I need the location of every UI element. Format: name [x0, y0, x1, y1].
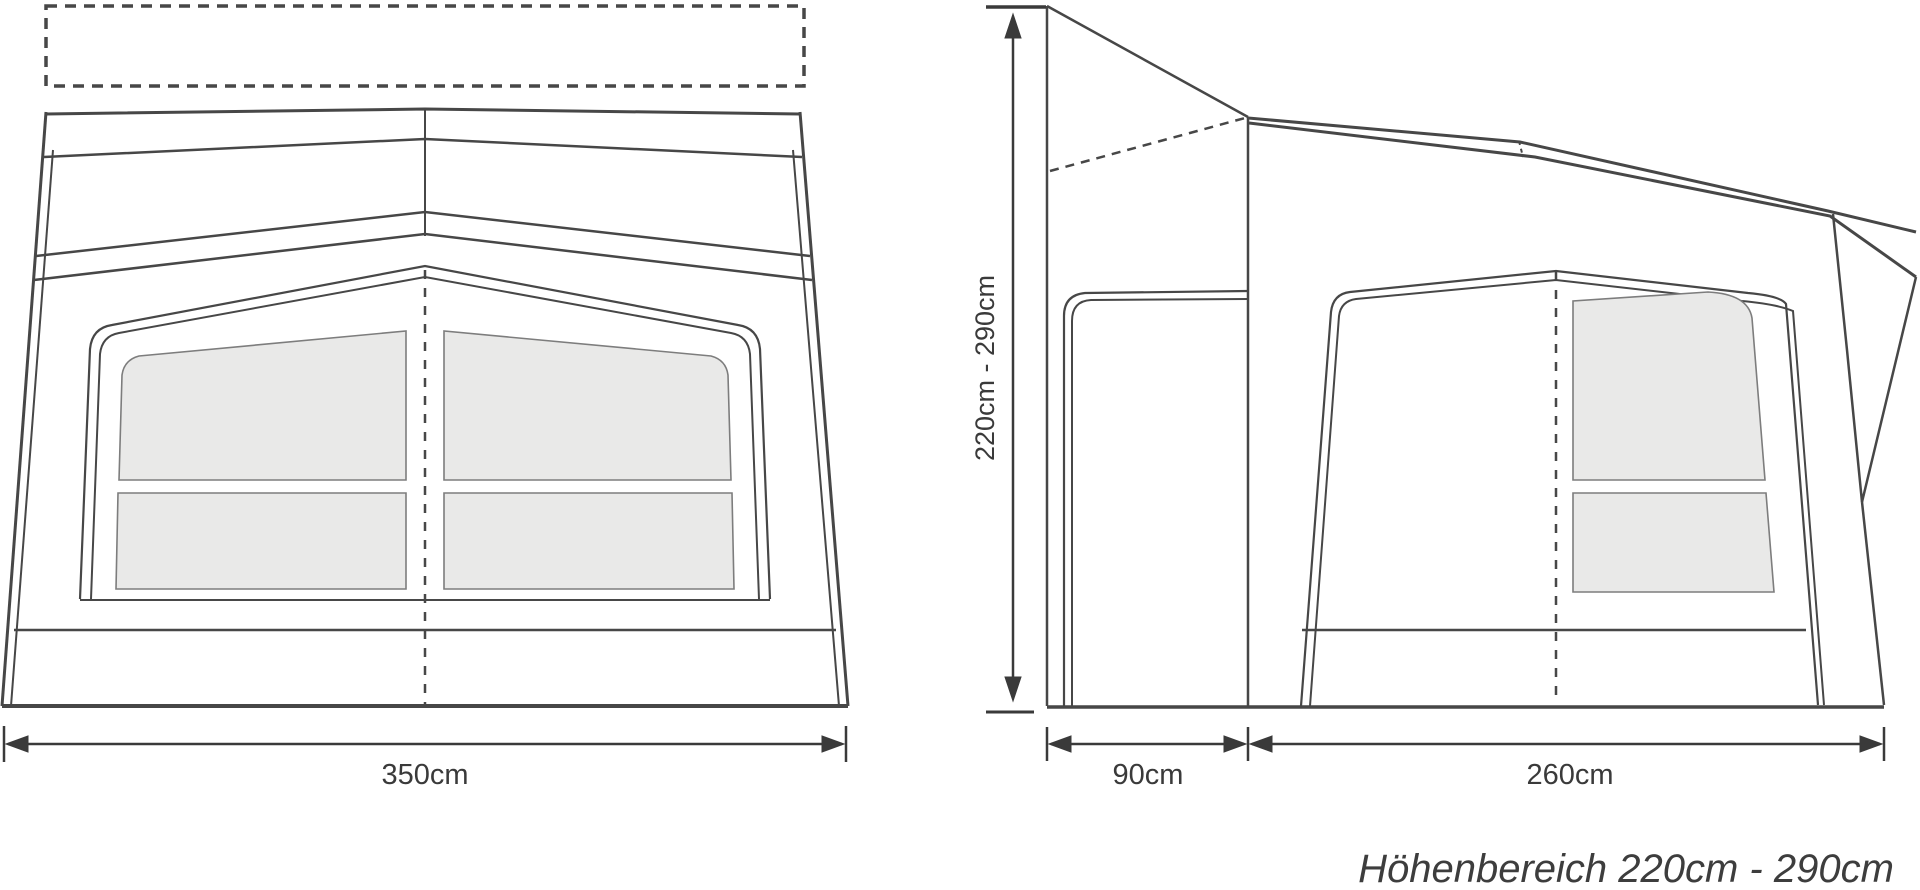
- front-view-drawing: [2, 6, 848, 706]
- front-left-edge-inner: [11, 150, 53, 706]
- arrow-right-icon: [1224, 736, 1246, 752]
- side-depth-label: 90cm: [1113, 759, 1184, 791]
- front-right-edge-inner: [793, 150, 839, 706]
- front-roof-band-line: [44, 139, 802, 157]
- front-top-edge: [46, 109, 800, 114]
- side-view-drawing: [1047, 6, 1916, 707]
- side-depth-dimension: [1047, 727, 1248, 761]
- front-width-dimension: [4, 726, 846, 762]
- front-window-left-upper-pane: [119, 331, 406, 480]
- side-roofline-lower: [1249, 123, 1916, 277]
- front-width-label: 350cm: [381, 759, 468, 791]
- side-rear-flap-front-edge: [1833, 214, 1862, 502]
- front-roof-dashed-outline: [46, 6, 804, 86]
- side-caravan-roof-edge: [1047, 6, 1248, 117]
- arrow-left-icon: [1049, 736, 1071, 752]
- arrow-right-icon: [822, 736, 844, 752]
- arrow-up-icon: [1005, 14, 1021, 38]
- front-left-edge-outer: [2, 112, 46, 706]
- front-right-edge-outer: [800, 112, 848, 706]
- side-window-lower-pane: [1573, 493, 1774, 592]
- front-window-right-upper-pane: [444, 331, 731, 480]
- side-height-label: 220cm - 290cm: [970, 275, 1000, 461]
- arrow-left-icon: [6, 736, 28, 752]
- arrow-down-icon: [1005, 677, 1021, 701]
- front-window-left-lower-pane: [116, 493, 406, 589]
- awning-dimension-diagram: 350cm: [0, 0, 1920, 890]
- front-windows: [116, 331, 734, 589]
- side-window: [1573, 292, 1774, 592]
- front-chevron-lower: [34, 234, 812, 280]
- arrow-left-icon: [1250, 736, 1272, 752]
- side-roof-alt-dashed-line: [1050, 118, 1245, 171]
- side-length-dimension: [1250, 727, 1884, 761]
- arrow-right-icon: [1860, 736, 1882, 752]
- diagram-canvas: 350cm: [0, 0, 1920, 890]
- side-door-frame-inner: [1072, 299, 1248, 706]
- side-door-frame-outer: [1064, 291, 1248, 706]
- height-range-caption: Höhenbereich 220cm - 290cm: [1358, 847, 1894, 890]
- side-length-label: 260cm: [1526, 759, 1613, 791]
- side-window-upper-pane: [1573, 292, 1765, 480]
- side-rear-flap-lower-edge: [1862, 502, 1884, 705]
- side-rear-flap-back-edge: [1862, 277, 1916, 502]
- front-window-right-lower-pane: [444, 493, 734, 589]
